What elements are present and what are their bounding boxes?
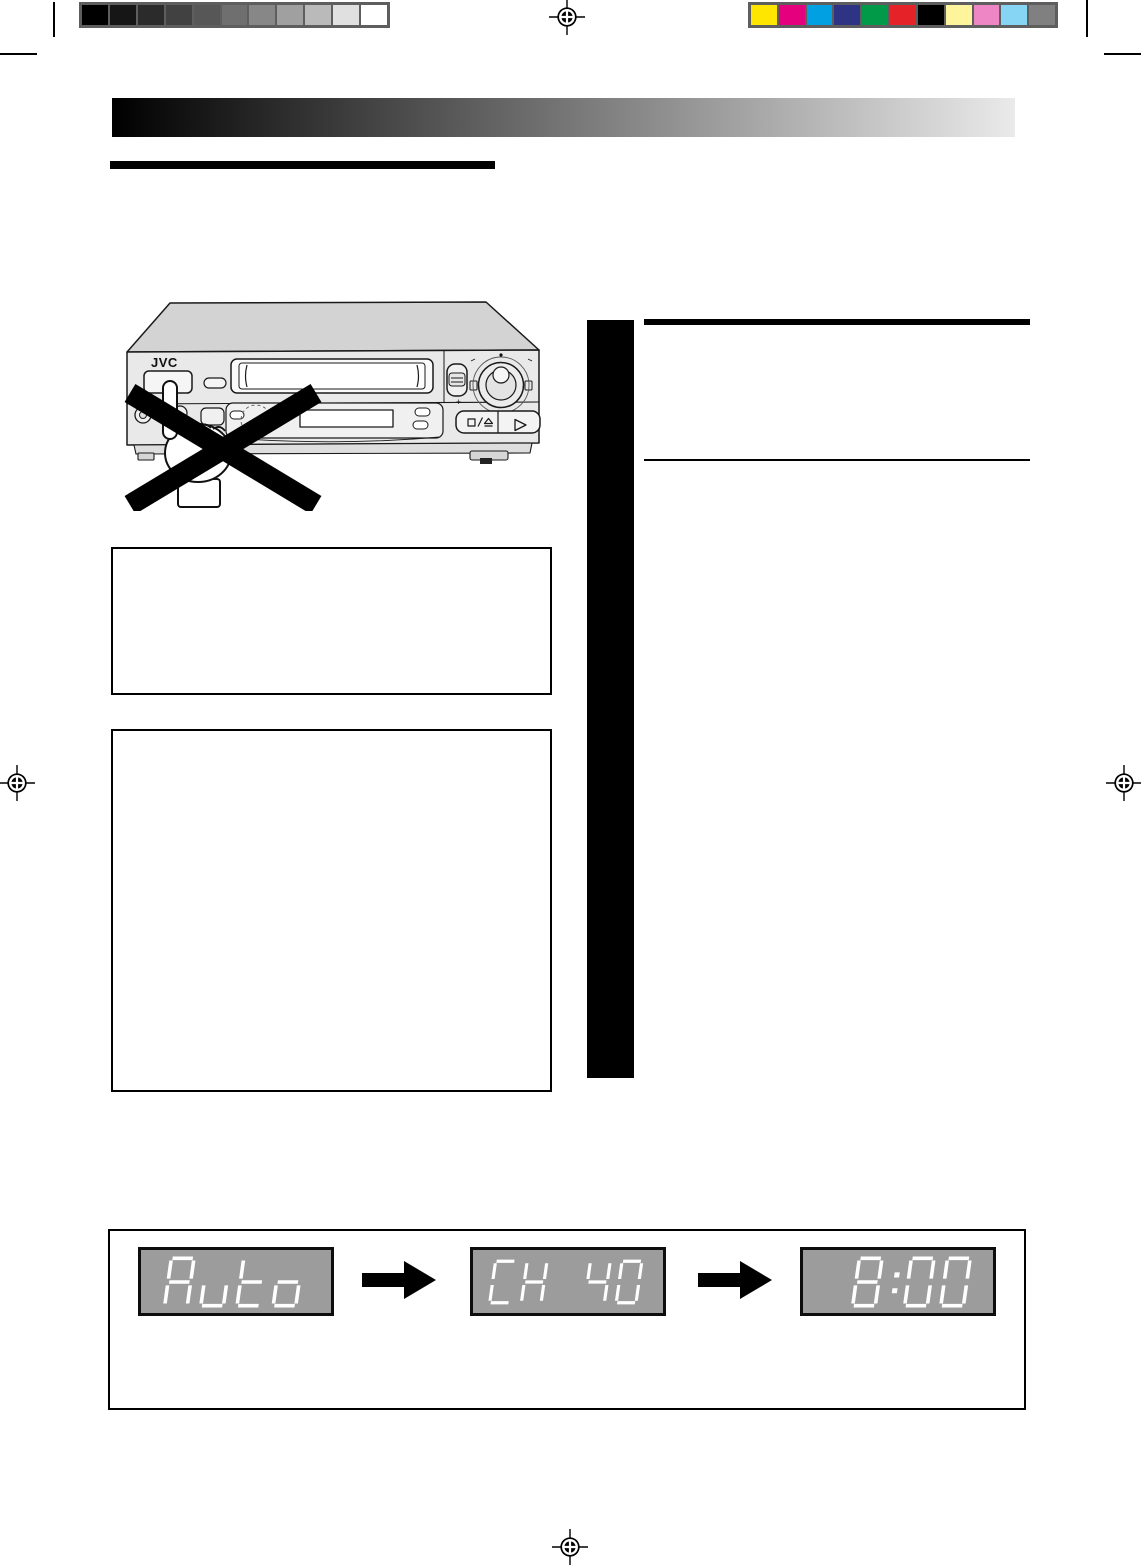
header-gradient-bar <box>112 98 1015 137</box>
registration-mark-bottom <box>550 1527 590 1567</box>
calibration-swatch <box>1029 5 1055 25</box>
crop-tick-top-left-vertical <box>53 2 55 37</box>
lcd-display-auto <box>138 1247 334 1316</box>
jvc-logo: JVC <box>151 355 178 370</box>
calibration-swatch <box>82 5 108 25</box>
section-title-bar <box>110 161 495 169</box>
registration-mark-top <box>547 0 587 37</box>
lcd-display-time <box>800 1247 996 1316</box>
calibration-swatch <box>890 5 916 25</box>
calibration-swatch <box>194 5 220 25</box>
calibration-swatch <box>807 5 833 25</box>
calibration-swatch <box>110 5 136 25</box>
crop-tick-top-left-horizontal <box>0 53 37 55</box>
calibration-swatch <box>779 5 805 25</box>
right-column-top-rule <box>644 319 1030 325</box>
crop-tick-top-right-vertical <box>1086 0 1088 37</box>
calibration-swatch <box>249 5 275 25</box>
calibration-swatch <box>834 5 860 25</box>
jog-knob <box>493 367 509 383</box>
right-column-bottom-rule <box>644 459 1030 461</box>
vcr-left-foot <box>138 453 154 460</box>
calibration-swatch <box>166 5 192 25</box>
note-box-1 <box>111 547 552 695</box>
calibration-swatch <box>918 5 944 25</box>
calibration-swatch <box>361 5 387 25</box>
plus-label: + <box>456 397 461 407</box>
display-window <box>300 410 393 427</box>
calibration-swatch <box>862 5 888 25</box>
crop-tick-top-right-horizontal <box>1104 53 1141 55</box>
calibration-swatch <box>305 5 331 25</box>
arrow-right-icon <box>698 1261 772 1299</box>
calibration-swatch <box>974 5 1000 25</box>
calibration-swatch <box>751 5 777 25</box>
display-sequence-box <box>108 1229 1026 1410</box>
vcr-top-face <box>127 302 539 352</box>
calibration-swatch <box>333 5 359 25</box>
step-marker-bar <box>587 320 634 1078</box>
vcr-illustration: JVC + <box>118 297 550 511</box>
manual-page: JVC + <box>0 0 1141 1568</box>
note-box-2 <box>111 729 552 1092</box>
lcd-display-channel <box>470 1247 666 1316</box>
calibration-swatch <box>138 5 164 25</box>
front-pill-button-1 <box>204 378 226 388</box>
registration-mark-right <box>1104 763 1141 803</box>
grayscale-calibration-strip <box>79 2 390 28</box>
calibration-swatch <box>1001 5 1027 25</box>
arrow-right-icon <box>362 1261 436 1299</box>
registration-mark-left <box>0 763 37 803</box>
calibration-swatch <box>277 5 303 25</box>
calibration-swatch <box>946 5 972 25</box>
color-calibration-strip <box>748 2 1058 28</box>
calibration-swatch <box>222 5 248 25</box>
lower-left-button <box>201 408 224 425</box>
